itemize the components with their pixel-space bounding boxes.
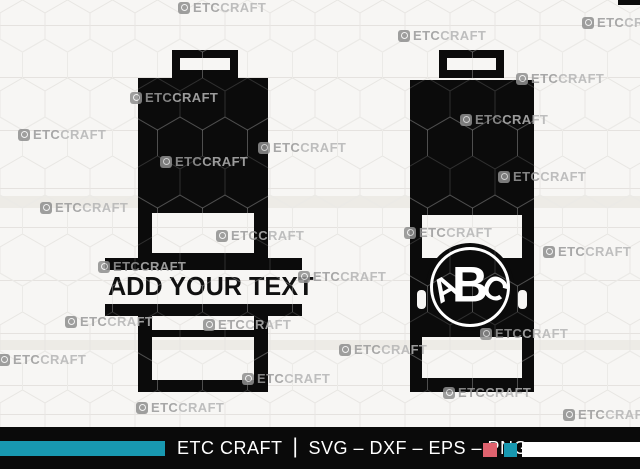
watermark-text-etc: ETC <box>558 244 585 259</box>
watermark-text-etc: ETC <box>578 407 605 422</box>
watermark-text-etc: ETC <box>531 71 558 86</box>
watermark-text-craft: CRAFT <box>624 15 640 30</box>
etccraft-logo-icon <box>339 344 351 356</box>
watermark-text-craft: CRAFT <box>300 140 346 155</box>
watermark-text-etc: ETC <box>475 112 502 127</box>
watermark-text-etc: ETC <box>193 0 220 15</box>
etccraft-logo-ring <box>68 318 75 325</box>
etccraft-logo-icon <box>136 402 148 414</box>
etccraft-watermark: ETCCRAFT <box>498 169 586 184</box>
etccraft-logo-ring <box>21 131 28 138</box>
wood-line <box>0 227 640 228</box>
battery-handle <box>172 50 238 78</box>
etccraft-logo-ring <box>407 229 414 236</box>
etccraft-logo-ring <box>519 75 526 82</box>
watermark-text-craft: CRAFT <box>60 127 106 142</box>
etccraft-watermark: ETCCRAFT <box>480 326 568 341</box>
etccraft-logo-ring <box>219 232 226 239</box>
wood-line <box>0 25 640 26</box>
wood-shade-band <box>0 340 640 350</box>
etccraft-watermark: ETCCRAFT <box>178 0 266 15</box>
watermark-text-craft: CRAFT <box>540 169 586 184</box>
etccraft-watermark: ETCCRAFT <box>298 269 386 284</box>
etccraft-logo-icon <box>543 246 555 258</box>
etccraft-logo-icon <box>178 2 190 14</box>
etccraft-watermark: ETCCRAFT <box>563 407 640 422</box>
etccraft-logo-icon <box>130 92 142 104</box>
etccraft-watermark: ETCCRAFT <box>40 200 128 215</box>
watermark-text-etc: ETC <box>175 154 202 169</box>
etccraft-watermark: ETCCRAFT <box>460 112 548 127</box>
etccraft-logo-ring <box>301 273 308 280</box>
watermark-text-craft: CRAFT <box>107 314 153 329</box>
etccraft-logo-ring <box>101 263 108 270</box>
monogram-circle-frame: A B C <box>426 243 514 331</box>
add-your-text-label: ADD YOUR TEXT <box>108 269 299 304</box>
etccraft-logo-ring <box>206 321 213 328</box>
etccraft-logo-icon <box>65 316 77 328</box>
etccraft-logo-icon <box>404 227 416 239</box>
battery-window-border <box>138 213 152 258</box>
watermark-text-craft: CRAFT <box>82 200 128 215</box>
watermark-text-craft: CRAFT <box>522 326 568 341</box>
watermark-text-etc: ETC <box>354 342 381 357</box>
etccraft-watermark: ETCCRAFT <box>543 244 631 259</box>
etccraft-logo-icon <box>242 373 254 385</box>
etccraft-logo-icon <box>98 261 110 273</box>
side-accent <box>518 290 527 309</box>
watermark-text-etc: ETC <box>113 259 140 274</box>
watermark-text-craft: CRAFT <box>340 269 386 284</box>
etccraft-logo-ring <box>139 404 146 411</box>
etccraft-watermark: ETCCRAFT <box>160 154 248 169</box>
teal-accent-chip <box>504 443 517 457</box>
battery-handle <box>439 50 504 78</box>
watermark-text-etc: ETC <box>151 400 178 415</box>
etccraft-watermark: ETCCRAFT <box>0 352 86 367</box>
etccraft-logo-icon <box>443 387 455 399</box>
battery-window-border <box>522 215 534 258</box>
etccraft-watermark: ETCCRAFT <box>404 225 492 240</box>
product-image-canvas: ADD YOUR TEXT A B C <box>0 0 640 469</box>
watermark-text-etc: ETC <box>273 140 300 155</box>
etccraft-logo-ring <box>401 32 408 39</box>
watermark-text-craft: CRAFT <box>381 342 427 357</box>
watermark-text-craft: CRAFT <box>245 317 291 332</box>
etccraft-logo-ring <box>181 4 188 11</box>
etccraft-logo-ring <box>43 204 50 211</box>
watermark-text-craft: CRAFT <box>585 244 631 259</box>
etccraft-watermark: ETCCRAFT <box>258 140 346 155</box>
etccraft-watermark: ETCCRAFT <box>339 342 427 357</box>
etccraft-logo-icon <box>398 30 410 42</box>
etccraft-logo-ring <box>501 173 508 180</box>
etccraft-logo-ring <box>483 330 490 337</box>
etccraft-logo-icon <box>298 271 310 283</box>
watermark-text-craft: CRAFT <box>40 352 86 367</box>
footer-text: ETC CRAFT | SVG – DXF – EPS – PNG <box>177 427 528 469</box>
etccraft-logo-ring <box>133 94 140 101</box>
watermark-text-craft: CRAFT <box>140 259 186 274</box>
watermark-text-craft: CRAFT <box>178 400 224 415</box>
watermark-text-craft: CRAFT <box>502 112 548 127</box>
etccraft-logo-icon <box>203 319 215 331</box>
etccraft-watermark: ETCCRAFT <box>65 314 153 329</box>
footer-teal-bar <box>0 441 165 456</box>
watermark-text-etc: ETC <box>13 352 40 367</box>
etccraft-logo-ring <box>245 375 252 382</box>
watermark-text-etc: ETC <box>458 385 485 400</box>
watermark-text-etc: ETC <box>218 317 245 332</box>
watermark-text-craft: CRAFT <box>258 228 304 243</box>
etccraft-logo-icon <box>563 409 575 421</box>
etccraft-watermark: ETCCRAFT <box>516 71 604 86</box>
etccraft-watermark: ETCCRAFT <box>203 317 291 332</box>
etccraft-watermark: ETCCRAFT <box>216 228 304 243</box>
etccraft-logo-icon <box>516 73 528 85</box>
etccraft-logo-ring <box>585 19 592 26</box>
watermark-text-craft: CRAFT <box>284 371 330 386</box>
etccraft-watermark: ETCCRAFT <box>582 15 640 30</box>
etccraft-logo-ring <box>1 356 8 363</box>
watermark-text-etc: ETC <box>145 90 172 105</box>
watermark-text-craft: CRAFT <box>220 0 266 15</box>
red-accent-chip <box>483 443 497 457</box>
watermark-text-etc: ETC <box>55 200 82 215</box>
etccraft-watermark: ETCCRAFT <box>130 90 218 105</box>
wood-line <box>0 188 640 189</box>
footer-bar: ETC CRAFT | SVG – DXF – EPS – PNG <box>0 427 640 469</box>
etccraft-logo-icon <box>160 156 172 168</box>
watermark-text-etc: ETC <box>597 15 624 30</box>
wood-line <box>0 414 640 415</box>
white-accent-chip <box>522 442 640 457</box>
battery-window-border <box>522 337 534 378</box>
etccraft-watermark: ETCCRAFT <box>98 259 186 274</box>
etccraft-logo-ring <box>163 158 170 165</box>
etccraft-watermark: ETCCRAFT <box>136 400 224 415</box>
footer-separator: | <box>293 435 299 459</box>
etccraft-logo-icon <box>258 142 270 154</box>
etccraft-watermark: ETCCRAFT <box>18 127 106 142</box>
watermark-text-craft: CRAFT <box>440 28 486 43</box>
brand-label: ETC CRAFT <box>177 438 283 459</box>
etccraft-logo-icon <box>216 230 228 242</box>
watermark-text-craft: CRAFT <box>605 407 640 422</box>
side-accent <box>417 290 426 309</box>
watermark-text-craft: CRAFT <box>485 385 531 400</box>
watermark-text-etc: ETC <box>231 228 258 243</box>
watermark-text-etc: ETC <box>80 314 107 329</box>
etccraft-watermark: ETCCRAFT <box>398 28 486 43</box>
etccraft-logo-ring <box>342 346 349 353</box>
etccraft-logo-icon <box>498 171 510 183</box>
etccraft-logo-icon <box>460 114 472 126</box>
watermark-text-etc: ETC <box>495 326 522 341</box>
watermark-text-craft: CRAFT <box>202 154 248 169</box>
cropped-design-fragment <box>618 0 640 5</box>
watermark-text-craft: CRAFT <box>558 71 604 86</box>
battery-body-top <box>410 80 534 215</box>
etccraft-logo-icon <box>0 354 10 366</box>
watermark-text-craft: CRAFT <box>172 90 218 105</box>
watermark-text-etc: ETC <box>513 169 540 184</box>
watermark-text-etc: ETC <box>413 28 440 43</box>
etccraft-watermark: ETCCRAFT <box>242 371 330 386</box>
etccraft-logo-icon <box>582 17 594 29</box>
etccraft-logo-ring <box>546 248 553 255</box>
etccraft-logo-ring <box>566 411 573 418</box>
etccraft-logo-ring <box>261 144 268 151</box>
watermark-text-etc: ETC <box>33 127 60 142</box>
watermark-text-etc: ETC <box>257 371 284 386</box>
etccraft-logo-ring <box>463 116 470 123</box>
etccraft-watermark: ETCCRAFT <box>443 385 531 400</box>
etccraft-logo-icon <box>18 129 30 141</box>
watermark-text-craft: CRAFT <box>446 225 492 240</box>
watermark-text-etc: ETC <box>419 225 446 240</box>
etccraft-logo-ring <box>446 389 453 396</box>
watermark-text-etc: ETC <box>313 269 340 284</box>
etccraft-logo-icon <box>480 328 492 340</box>
etccraft-logo-icon <box>40 202 52 214</box>
